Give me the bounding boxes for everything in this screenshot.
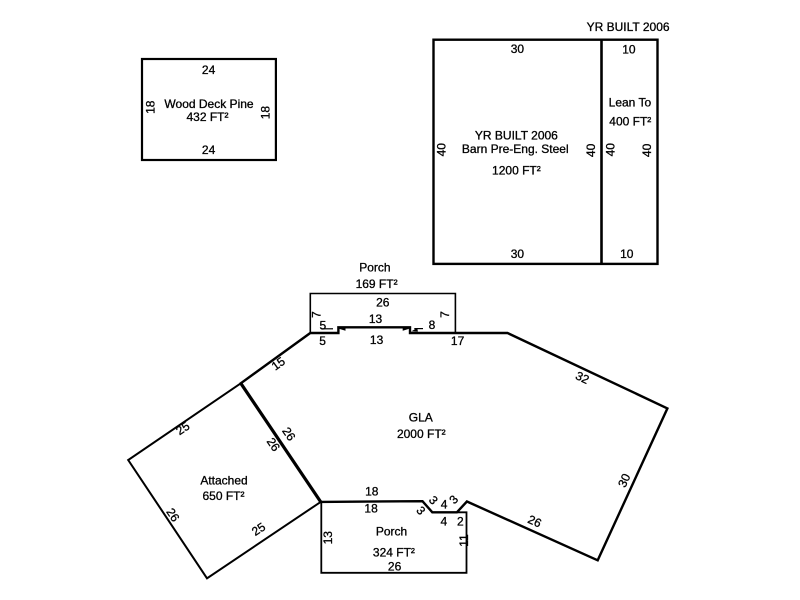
svg-text:11: 11: [457, 534, 471, 547]
svg-text:40: 40: [640, 143, 654, 157]
svg-text:40: 40: [584, 143, 598, 157]
svg-text:13: 13: [370, 333, 384, 347]
svg-text:4: 4: [441, 497, 448, 511]
svg-text:18: 18: [365, 485, 379, 499]
svg-text:7: 7: [310, 311, 324, 318]
svg-text:8: 8: [429, 318, 436, 332]
svg-text:26: 26: [388, 560, 402, 574]
svg-text:5: 5: [319, 334, 326, 348]
svg-text:26: 26: [376, 296, 390, 310]
svg-text:Barn Pre-Eng. Steel: Barn Pre-Eng. Steel: [462, 142, 569, 156]
svg-text:10: 10: [620, 247, 634, 261]
svg-text:2: 2: [457, 515, 464, 529]
svg-text:10: 10: [622, 42, 636, 56]
svg-text:40: 40: [435, 143, 449, 157]
svg-text:650 FT²: 650 FT²: [202, 489, 244, 503]
svg-text:YR BUILT 2006: YR BUILT 2006: [475, 129, 558, 143]
svg-text:5: 5: [320, 319, 327, 333]
svg-text:13: 13: [321, 531, 335, 545]
svg-text:Lean To: Lean To: [609, 95, 652, 109]
svg-text:2000 FT²: 2000 FT²: [397, 427, 446, 441]
svg-text:7: 7: [438, 311, 452, 318]
svg-text:169 FT²: 169 FT²: [356, 277, 398, 291]
svg-text:30: 30: [511, 42, 525, 56]
svg-text:30: 30: [511, 247, 525, 261]
svg-text:400 FT²: 400 FT²: [609, 115, 651, 129]
svg-text:324 FT²: 324 FT²: [373, 545, 415, 559]
svg-text:24: 24: [202, 63, 216, 77]
svg-text:Porch: Porch: [376, 524, 407, 538]
svg-text:Porch: Porch: [359, 261, 390, 275]
svg-text:4: 4: [440, 515, 447, 529]
svg-text:18: 18: [143, 100, 157, 114]
svg-text:17: 17: [451, 334, 465, 348]
svg-text:24: 24: [202, 143, 216, 157]
svg-text:GLA: GLA: [409, 411, 433, 425]
svg-text:1200 FT²: 1200 FT²: [492, 164, 541, 178]
svg-text:40: 40: [603, 143, 617, 157]
svg-text:YR BUILT 2006: YR BUILT 2006: [587, 20, 670, 34]
svg-text:432 FT²: 432 FT²: [186, 110, 228, 124]
svg-text:18: 18: [364, 502, 378, 516]
svg-text:Attached: Attached: [200, 474, 247, 488]
svg-text:13: 13: [369, 312, 383, 326]
svg-text:18: 18: [258, 106, 272, 120]
